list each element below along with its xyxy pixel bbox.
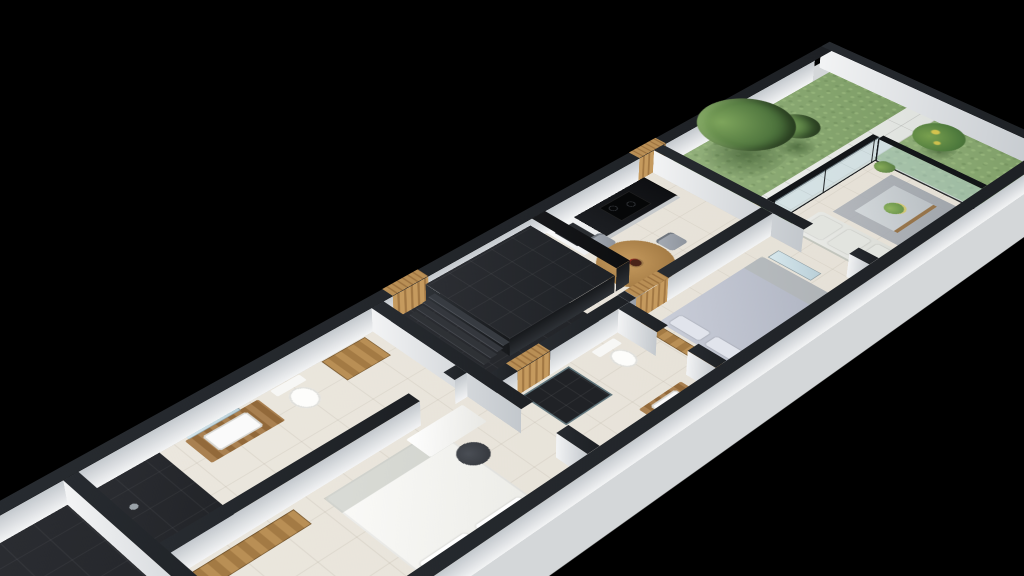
- coffee-table-plant: [880, 200, 908, 216]
- floor-plan-scene: [0, 0, 1024, 576]
- cooktop-burner: [607, 205, 620, 212]
- floor-plan-plane: [0, 63, 1024, 576]
- cooktop-burner: [625, 200, 638, 207]
